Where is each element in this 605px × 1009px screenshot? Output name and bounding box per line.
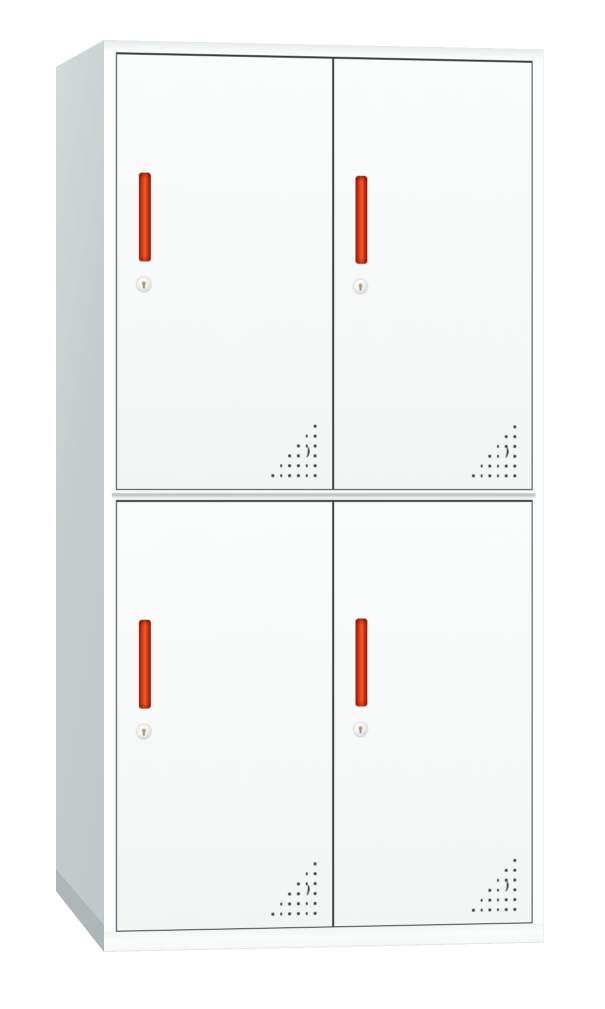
cabinet-front: [104, 40, 544, 952]
vent-hole: [505, 474, 508, 477]
vent-hole: [480, 474, 483, 477]
vent-hole: [314, 892, 317, 895]
vent-hole: [280, 903, 283, 906]
door-handle: [356, 618, 368, 706]
vent-hole: [305, 474, 308, 477]
vent-crescent-cutout: [302, 446, 310, 458]
vent-hole: [272, 474, 275, 477]
vent-hole: [297, 464, 300, 467]
vent-hole: [297, 454, 300, 457]
vent-hole: [497, 474, 500, 477]
vent-hole: [497, 455, 500, 458]
vent-hole: [314, 435, 317, 438]
door-row-bottom: [116, 500, 533, 932]
vent-crescent-cutout: [502, 880, 510, 891]
vent-hole: [489, 455, 492, 458]
cam-lock: [137, 277, 151, 291]
vent-hole: [497, 898, 500, 901]
door-row-top: [116, 52, 533, 490]
vent-hole: [513, 898, 516, 901]
vent-hole: [305, 902, 308, 905]
cam-lock: [354, 280, 368, 294]
vent-hole: [288, 474, 291, 477]
vent-hole: [314, 474, 317, 477]
locker-door-top-right: [333, 57, 532, 490]
vent-hole: [513, 425, 516, 428]
vent-hole: [305, 464, 308, 467]
vent-hole: [513, 869, 516, 872]
vent-hole: [288, 912, 291, 915]
vent-hole: [297, 892, 300, 895]
vent-hole: [280, 474, 283, 477]
vent-hole: [272, 913, 275, 916]
keyhole-icon: [359, 284, 363, 288]
door-handle: [139, 173, 151, 262]
ventilation-holes: [272, 862, 318, 916]
vent-hole: [472, 909, 475, 912]
vent-hole: [497, 908, 500, 911]
vent-hole: [305, 912, 308, 915]
vent-hole: [480, 909, 483, 912]
vent-hole: [297, 902, 300, 905]
vent-hole: [314, 454, 317, 457]
vent-hole: [513, 455, 516, 458]
vent-hole: [297, 444, 300, 447]
vent-hole: [489, 465, 492, 468]
door-handle: [139, 620, 151, 709]
cabinet-side-panel: [56, 40, 104, 952]
vent-hole: [314, 872, 317, 875]
vent-hole: [505, 908, 508, 911]
vent-hole: [297, 474, 300, 477]
vent-hole: [288, 902, 291, 905]
cam-lock: [137, 725, 151, 739]
vent-hole: [314, 882, 317, 885]
vent-hole: [489, 899, 492, 902]
vent-hole: [505, 898, 508, 901]
locker-door-bottom-right: [333, 500, 532, 927]
vent-crescent-cutout: [302, 884, 310, 895]
vent-hole: [314, 862, 317, 865]
vent-hole: [505, 869, 508, 872]
vent-hole: [280, 464, 283, 467]
vent-hole: [497, 879, 500, 882]
vent-hole: [513, 908, 516, 911]
vent-hole: [297, 882, 300, 885]
middle-frame-band: [112, 490, 535, 500]
door-handle: [356, 176, 368, 264]
ventilation-holes: [472, 859, 517, 913]
vent-hole: [480, 465, 483, 468]
vent-hole: [288, 464, 291, 467]
vent-hole: [513, 859, 516, 862]
vent-hole: [314, 902, 317, 905]
vent-hole: [472, 474, 475, 477]
vent-hole: [314, 464, 317, 467]
cam-lock: [354, 722, 368, 736]
vent-hole: [489, 474, 492, 477]
vent-hole: [513, 465, 516, 468]
vent-hole: [505, 435, 508, 438]
vent-hole: [314, 912, 317, 915]
vent-hole: [489, 908, 492, 911]
vent-hole: [288, 893, 291, 896]
vent-hole: [497, 889, 500, 892]
keyhole-icon: [142, 281, 146, 285]
vent-hole: [305, 435, 308, 438]
vent-hole: [314, 445, 317, 448]
ventilation-holes: [472, 425, 517, 478]
vent-hole: [513, 435, 516, 438]
vent-hole: [505, 465, 508, 468]
ventilation-holes: [272, 425, 318, 479]
vent-hole: [305, 872, 308, 875]
vent-hole: [297, 912, 300, 915]
vent-hole: [513, 445, 516, 448]
locker-door-bottom-left: [116, 500, 333, 932]
locker-cabinet: [56, 40, 545, 952]
keyhole-icon: [142, 729, 146, 733]
vent-hole: [280, 913, 283, 916]
vent-hole: [497, 445, 500, 448]
vent-hole: [489, 889, 492, 892]
vent-hole: [513, 879, 516, 882]
vent-hole: [288, 454, 291, 457]
vent-hole: [497, 465, 500, 468]
locker-door-top-left: [116, 52, 333, 490]
vent-crescent-cutout: [502, 447, 510, 458]
vent-hole: [513, 474, 516, 477]
vent-hole: [314, 425, 317, 428]
product-photo-locker: [0, 0, 605, 1009]
vent-hole: [480, 899, 483, 902]
keyhole-icon: [359, 726, 363, 730]
vent-hole: [513, 888, 516, 891]
